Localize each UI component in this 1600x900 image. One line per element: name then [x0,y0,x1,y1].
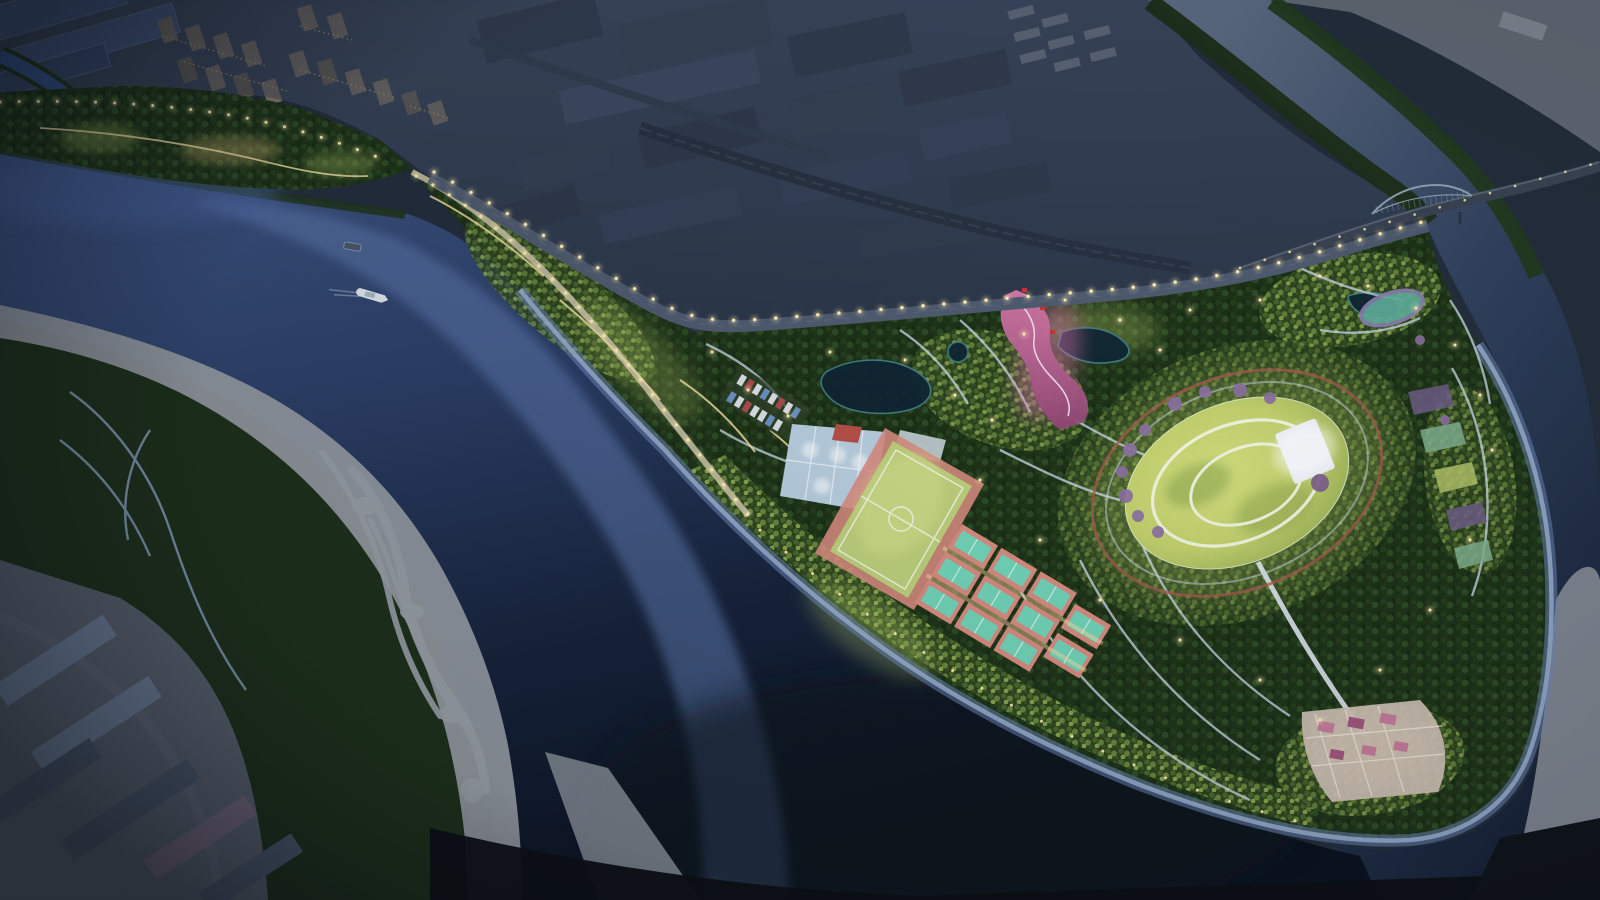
atmosphere-vignette [0,0,1600,900]
masterplan-rendering [0,0,1600,900]
